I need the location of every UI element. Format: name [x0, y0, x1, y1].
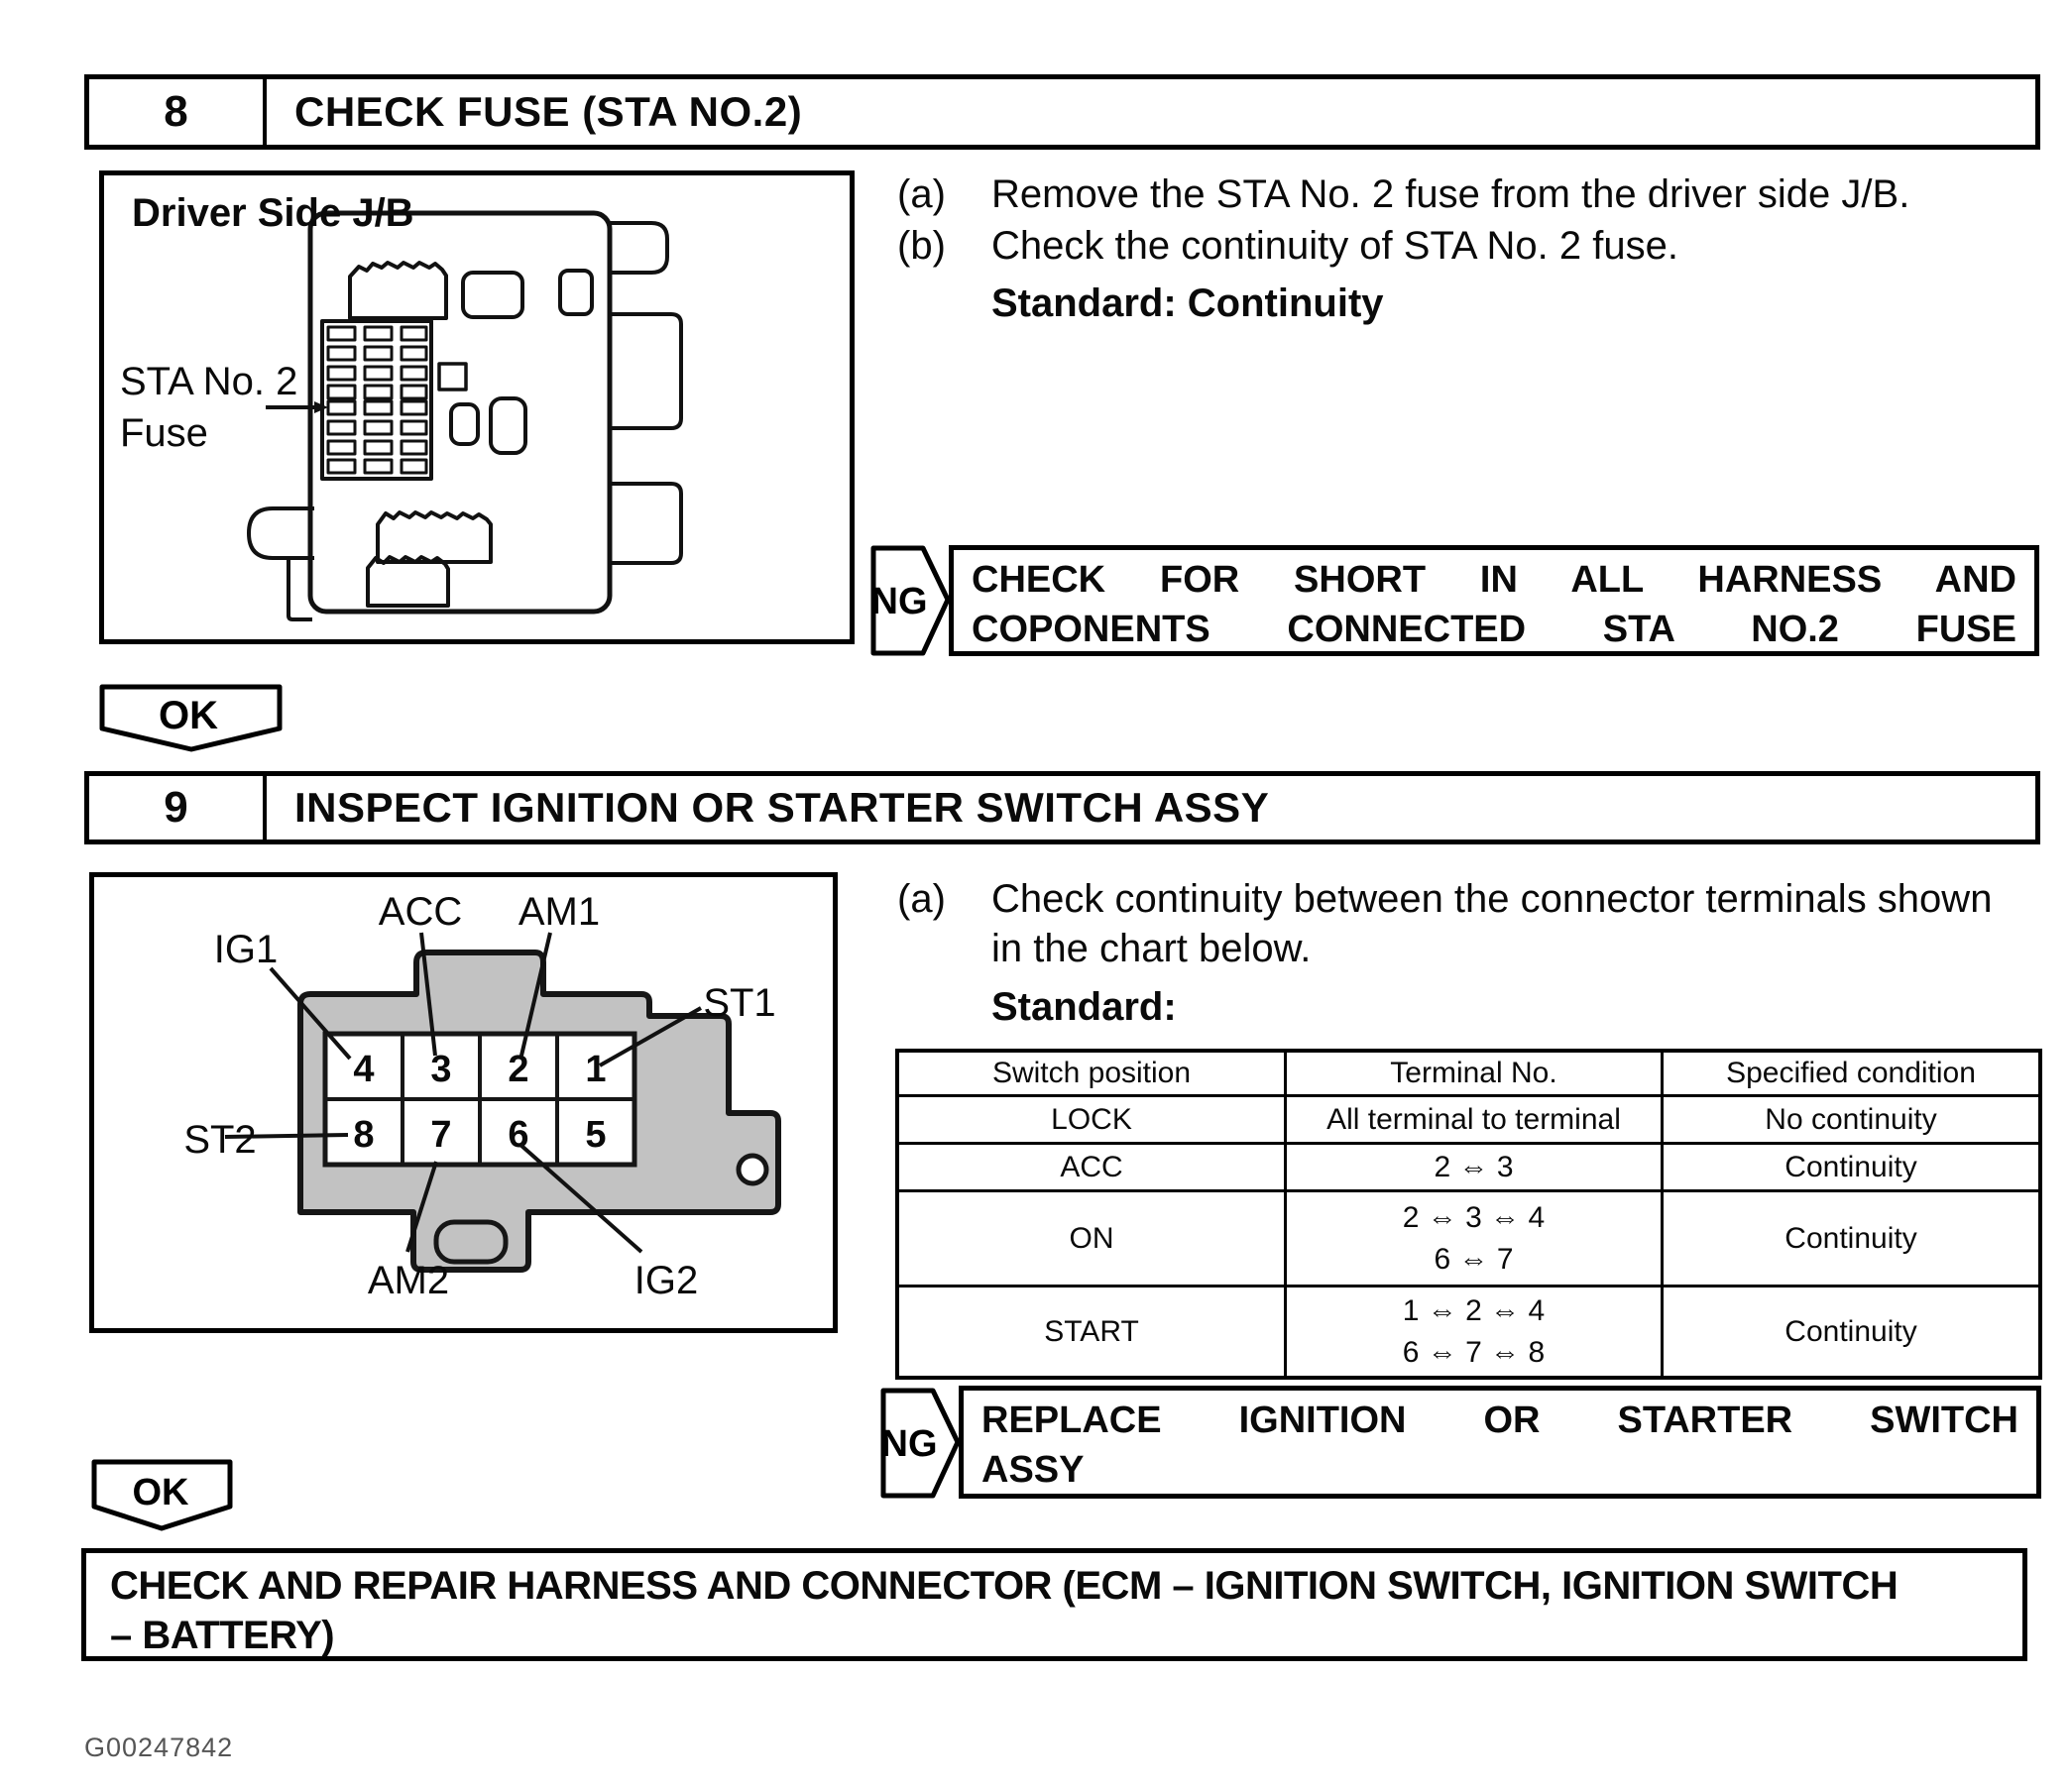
label-ig2: IG2	[634, 1259, 698, 1302]
list-marker: (a)	[897, 168, 991, 220]
label-st2: ST2	[183, 1118, 256, 1162]
ok-label: OK	[133, 1472, 190, 1513]
fusebox-title-label: Driver Side J/B	[132, 191, 414, 236]
col-header-terminal-no: Terminal No.	[1284, 1053, 1661, 1094]
table-header-row: Switch position Terminal No. Specified c…	[899, 1053, 2038, 1094]
step9-figure-box: 4 3 2 1 8 7 6 5 IG1 ACC	[89, 872, 838, 1333]
step9-ng-line1: REPLACE IGNITION OR STARTER SWITCH	[981, 1396, 2018, 1445]
service-manual-page: 8 CHECK FUSE (STA NO.2)	[0, 0, 2072, 1791]
ng-label: NG	[881, 1423, 938, 1465]
col-header-switch-position: Switch position	[899, 1053, 1284, 1094]
step9-header: 9 INSPECT IGNITION OR STARTER SWITCH ASS…	[84, 771, 2040, 844]
label-ig1: IG1	[214, 928, 278, 971]
step8-ng-arrow: NG	[870, 545, 952, 656]
step8-header: 8 CHECK FUSE (STA NO.2)	[84, 74, 2040, 150]
step9-ng-arrow: NG	[880, 1388, 962, 1499]
step9-ng-box: REPLACE IGNITION OR STARTER SWITCH ASSY	[959, 1386, 2041, 1499]
step8-ng-line2: COPONENTS CONNECTED STA NO.2 FUSE	[972, 605, 2016, 654]
step8-ng-line1: CHECK FOR SHORT IN ALL HARNESS AND	[972, 555, 2016, 605]
ok-label: OK	[159, 694, 218, 737]
step8-instruction-b: (b) Check the continuity of STA No. 2 fu…	[897, 220, 2067, 272]
ng-label: NG	[871, 581, 928, 622]
fuse-box-diagram	[104, 175, 850, 639]
label-st1: ST1	[703, 981, 775, 1025]
table-row: START 1 ⇔ 2 ⇔ 4 6 ⇔ 7 ⇔ 8 Continuity	[899, 1285, 2038, 1376]
table-row: ON 2 ⇔ 3 ⇔ 4 6 ⇔ 7 Continuity	[899, 1189, 2038, 1285]
final-action-box: CHECK AND REPAIR HARNESS AND CONNECTOR (…	[81, 1548, 2027, 1661]
step9-instructions: (a) Check continuity between the connect…	[897, 874, 2072, 1033]
pin-4: 4	[353, 1049, 374, 1090]
pin-5: 5	[585, 1114, 606, 1156]
col-header-specified-condition: Specified condition	[1661, 1053, 2038, 1094]
continuity-table: Switch position Terminal No. Specified c…	[895, 1049, 2042, 1380]
step8-title: CHECK FUSE (STA NO.2)	[267, 79, 2035, 145]
pin-2: 2	[508, 1049, 528, 1090]
label-am2: AM2	[368, 1259, 449, 1302]
pin-1: 1	[585, 1049, 606, 1090]
table-row: ACC 2 ⇔ 3 Continuity	[899, 1142, 2038, 1189]
label-acc: ACC	[379, 890, 462, 934]
step9-standard: Standard:	[991, 981, 2072, 1033]
step9-ng-line2: ASSY	[981, 1445, 2018, 1495]
sta-fuse-label-line2: Fuse	[120, 411, 208, 456]
connector-tab-slot	[436, 1222, 506, 1262]
step8-ng-box: CHECK FOR SHORT IN ALL HARNESS AND COPON…	[949, 545, 2039, 656]
step9-ok-arrow: OK	[91, 1459, 234, 1532]
final-action-line2: – BATTERY)	[110, 1611, 2022, 1660]
pin-8: 8	[353, 1114, 374, 1156]
step8-standard: Standard: Continuity	[991, 278, 2067, 329]
ignition-switch-connector-diagram: 4 3 2 1 8 7 6 5 IG1 ACC	[94, 877, 833, 1328]
label-am1: AM1	[518, 890, 600, 934]
step9-instruction-line1: Check continuity between the connector t…	[991, 874, 2072, 924]
step9-instruction-line2: in the chart below.	[991, 924, 2072, 973]
step8-ok-arrow: OK	[99, 684, 284, 753]
figure-id: G00247842	[84, 1733, 233, 1763]
connector-ear-hole	[739, 1156, 766, 1183]
step9-title: INSPECT IGNITION OR STARTER SWITCH ASSY	[267, 776, 2035, 840]
sta-fuse-label-line1: STA No. 2	[120, 360, 297, 404]
step8-number: 8	[89, 79, 267, 145]
step9-instruction-a: (a) Check continuity between the connect…	[897, 874, 2072, 973]
final-action-line1: CHECK AND REPAIR HARNESS AND CONNECTOR (…	[110, 1561, 2022, 1611]
list-marker: (b)	[897, 220, 991, 272]
list-marker: (a)	[897, 874, 991, 973]
pin-7: 7	[430, 1114, 451, 1156]
table-row: LOCK All terminal to terminal No continu…	[899, 1094, 2038, 1142]
step8-instruction-a: (a) Remove the STA No. 2 fuse from the d…	[897, 168, 2067, 220]
step8-figure-box: Driver Side J/B STA No. 2 Fuse	[99, 170, 855, 644]
step8-instructions: (a) Remove the STA No. 2 fuse from the d…	[897, 168, 2067, 329]
step9-number: 9	[89, 776, 267, 840]
